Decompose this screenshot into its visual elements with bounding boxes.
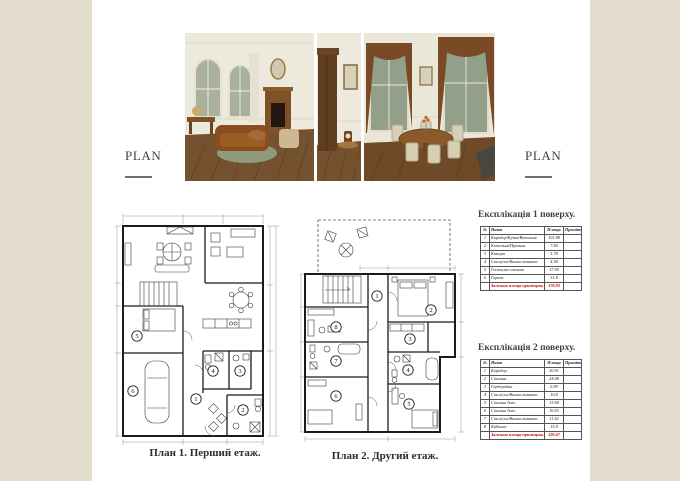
table-cell: Кабінет (490, 424, 545, 432)
dining-room-image (364, 33, 495, 181)
table-cell: 24.08 (545, 376, 564, 384)
table-cell: Примітка (564, 227, 582, 235)
table-cell: Загальна площа приміщень (490, 432, 545, 440)
floor-plan-2: 1 2 3 4 5 6 7 8 (300, 212, 470, 450)
table-cell: 6 (481, 275, 490, 283)
table-total-row: Загальна площа приміщень120.67 (481, 432, 582, 440)
table-cell: № (481, 227, 490, 235)
living-room-render (185, 33, 314, 181)
svg-text:3: 3 (238, 368, 241, 375)
table-row: 8Кабінет15.8 (481, 424, 582, 432)
table-cell: Спальня дит. (490, 400, 545, 408)
table-cell: 11.42 (545, 416, 564, 424)
table-cell: 31.8 (545, 275, 564, 283)
table-cell: Спальня дит. (490, 408, 545, 416)
table-cell: 3 (481, 384, 490, 392)
table-cell: 1 (481, 368, 490, 376)
table-cell: 5 (481, 267, 490, 275)
table-cell: 20.91 (545, 368, 564, 376)
plan1-caption: План 1. Перший етаж. (115, 447, 295, 459)
table-cell (564, 408, 582, 416)
table-cell: 6.89 (545, 384, 564, 392)
svg-text:5: 5 (135, 333, 138, 340)
plan2-room-numbers: 1 2 3 4 5 6 7 8 (331, 291, 436, 409)
table-cell: 5 (481, 400, 490, 408)
table-cell: Назва (490, 360, 545, 368)
floor-plan-1: 1 2 3 4 5 6 (115, 203, 295, 450)
table-header-row: №НазваПлощаПримітка (481, 360, 582, 368)
plan-label-right-rule (525, 176, 552, 178)
table-row: 4Сан.вузол/Ванна кімната4.58 (481, 259, 582, 267)
table-cell: Площа (545, 360, 564, 368)
plan-label-right: PLAN (525, 148, 561, 164)
floor-plan-2-drawing: 1 2 3 4 5 6 7 8 (300, 212, 470, 445)
dining-room-render (364, 33, 495, 181)
table-cell: Площа (545, 227, 564, 235)
table-cell: 2 (481, 376, 490, 384)
table-cell: 5.78 (545, 251, 564, 259)
svg-text:8: 8 (334, 324, 337, 331)
explication-1-table: №НазваПлощаПримітка1Коридор/Кухня/Віталь… (480, 226, 582, 291)
table-cell: 4 (481, 392, 490, 400)
paper-sheet: PLAN PLAN (92, 0, 590, 481)
svg-text:1: 1 (194, 396, 197, 403)
table-row: 3Гардеробна6.89 (481, 384, 582, 392)
explication-2-table: №НазваПлощаПримітка1Коридор20.912Спальня… (480, 359, 582, 440)
table-cell (564, 424, 582, 432)
table-cell (564, 376, 582, 384)
table-row: 1Коридор/Кухня/Вітальня101.88 (481, 235, 582, 243)
table-row: 2Котельня/Пральня7.84 (481, 243, 582, 251)
table-cell: 16.93 (545, 408, 564, 416)
table-cell (564, 368, 582, 376)
table-cell (564, 283, 582, 291)
table-row: 6Спальня дит.16.93 (481, 408, 582, 416)
table-cell: Гараж (490, 275, 545, 283)
table-row: 5Спальня дит.13.84 (481, 400, 582, 408)
table-row: 7Сан.вузол/Ванна кімната11.42 (481, 416, 582, 424)
table-cell: 6 (481, 408, 490, 416)
table-cell: 15.8 (545, 424, 564, 432)
table-cell: 3 (481, 251, 490, 259)
table-cell: 4.58 (545, 259, 564, 267)
table-row: 3Комора5.78 (481, 251, 582, 259)
table-cell: Комора (490, 251, 545, 259)
table-cell: 2 (481, 243, 490, 251)
table-cell: 10.8 (545, 392, 564, 400)
table-cell (564, 251, 582, 259)
floor-plan-1-drawing: 1 2 3 4 5 6 (115, 203, 295, 445)
table-cell: Коридор (490, 368, 545, 376)
table-cell: 7.84 (545, 243, 564, 251)
table-cell: Коридор/Кухня/Вітальня (490, 235, 545, 243)
table-cell (564, 259, 582, 267)
table-cell: 4 (481, 259, 490, 267)
table-cell: Котельня/Пральня (490, 243, 545, 251)
table-cell: Сан.вузол/Ванна кімната (490, 416, 545, 424)
living-room-image (185, 33, 314, 181)
table-cell: 8 (481, 424, 490, 432)
table-cell (564, 384, 582, 392)
table-header-row: №НазваПлощаПримітка (481, 227, 582, 235)
plan2-caption: План 2. Другий етаж. (300, 450, 470, 462)
table-cell: Примітка (564, 360, 582, 368)
table-cell (564, 235, 582, 243)
table-cell: 13.84 (545, 400, 564, 408)
table-cell (564, 400, 582, 408)
presentation-board: PLAN PLAN (0, 0, 680, 481)
table-cell: Назва (490, 227, 545, 235)
table-cell: Спальня (490, 376, 545, 384)
plan-label-left-rule (125, 176, 152, 178)
table-cell: 7 (481, 416, 490, 424)
table-cell: № (481, 360, 490, 368)
explication-2-title: Експлікація 2 поверху. (478, 343, 575, 353)
table-row: 5Гостьова спальня17.95 (481, 267, 582, 275)
table-cell: Загальна площа приміщень (490, 283, 545, 291)
plan1-room-numbers: 1 2 3 4 5 6 (128, 331, 248, 415)
table-cell (564, 243, 582, 251)
table-total-row: Загальна площа приміщень170.93 (481, 283, 582, 291)
hall-cabinet-image (317, 33, 361, 181)
table-cell: Сан.вузол/Ванна кімната (490, 259, 545, 267)
table-cell (564, 432, 582, 440)
table-cell: 17.95 (545, 267, 564, 275)
table-cell: Сан.вузол/Ванна кімната (490, 392, 545, 400)
plan-label-left: PLAN (125, 148, 161, 164)
table-cell: 170.93 (545, 283, 564, 291)
table-cell: Гостьова спальня (490, 267, 545, 275)
svg-text:5: 5 (407, 401, 410, 408)
table-cell (481, 432, 490, 440)
table-cell (564, 416, 582, 424)
table-cell (564, 392, 582, 400)
table-cell: Гардеробна (490, 384, 545, 392)
svg-text:1: 1 (375, 293, 378, 300)
svg-text:2: 2 (429, 307, 432, 314)
table-cell (481, 283, 490, 291)
svg-text:2: 2 (241, 407, 244, 414)
table-row: 6Гараж31.8 (481, 275, 582, 283)
table-cell: 101.88 (545, 235, 564, 243)
table-cell (564, 275, 582, 283)
table-cell: 1 (481, 235, 490, 243)
table-row: 1Коридор20.91 (481, 368, 582, 376)
table-row: 2Спальня24.08 (481, 376, 582, 384)
table-row: 4Сан.вузол/Ванна кімната10.8 (481, 392, 582, 400)
explication-1-title: Експлікація 1 поверху. (478, 210, 575, 220)
table-cell: 120.67 (545, 432, 564, 440)
hall-cabinet-render (317, 33, 361, 181)
svg-text:3: 3 (408, 336, 411, 343)
table-cell (564, 267, 582, 275)
